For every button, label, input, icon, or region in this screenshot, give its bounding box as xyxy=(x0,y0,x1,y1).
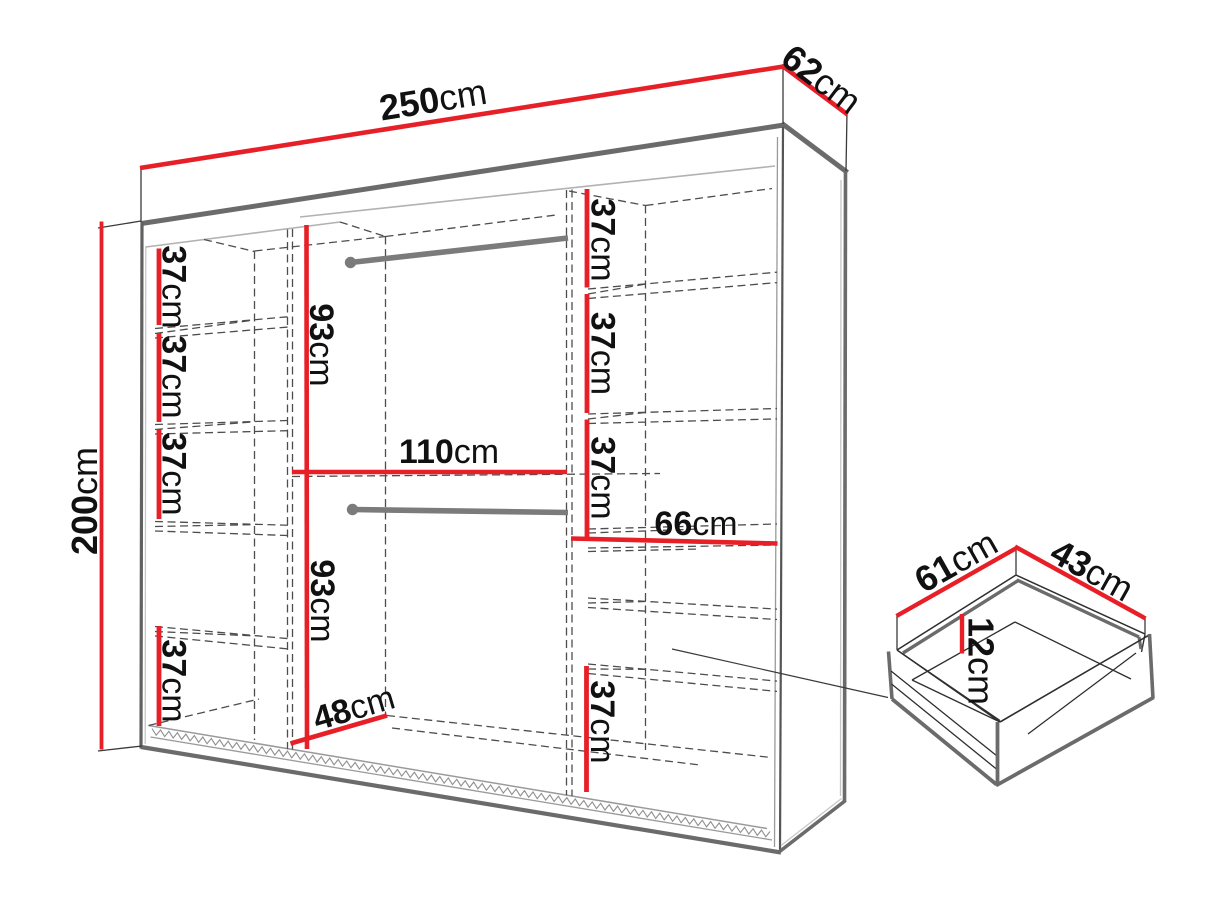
svg-text:37cm: 37cm xyxy=(155,639,193,722)
svg-text:37cm: 37cm xyxy=(155,432,193,515)
svg-text:48cm: 48cm xyxy=(309,679,399,739)
svg-text:12cm: 12cm xyxy=(961,617,1002,705)
svg-text:250cm: 250cm xyxy=(376,71,489,129)
svg-text:37cm: 37cm xyxy=(584,198,622,281)
svg-text:93cm: 93cm xyxy=(302,303,340,386)
svg-text:37cm: 37cm xyxy=(584,312,622,395)
svg-text:110cm: 110cm xyxy=(399,433,499,471)
svg-text:37cm: 37cm xyxy=(155,335,193,418)
svg-text:93cm: 93cm xyxy=(303,559,341,642)
svg-text:62cm: 62cm xyxy=(774,36,869,122)
svg-text:61cm: 61cm xyxy=(907,522,1004,601)
svg-text:37cm: 37cm xyxy=(155,245,193,328)
svg-text:200cm: 200cm xyxy=(64,447,105,555)
svg-text:37cm: 37cm xyxy=(583,680,621,763)
svg-text:66cm: 66cm xyxy=(654,505,737,543)
svg-text:37cm: 37cm xyxy=(584,436,622,519)
